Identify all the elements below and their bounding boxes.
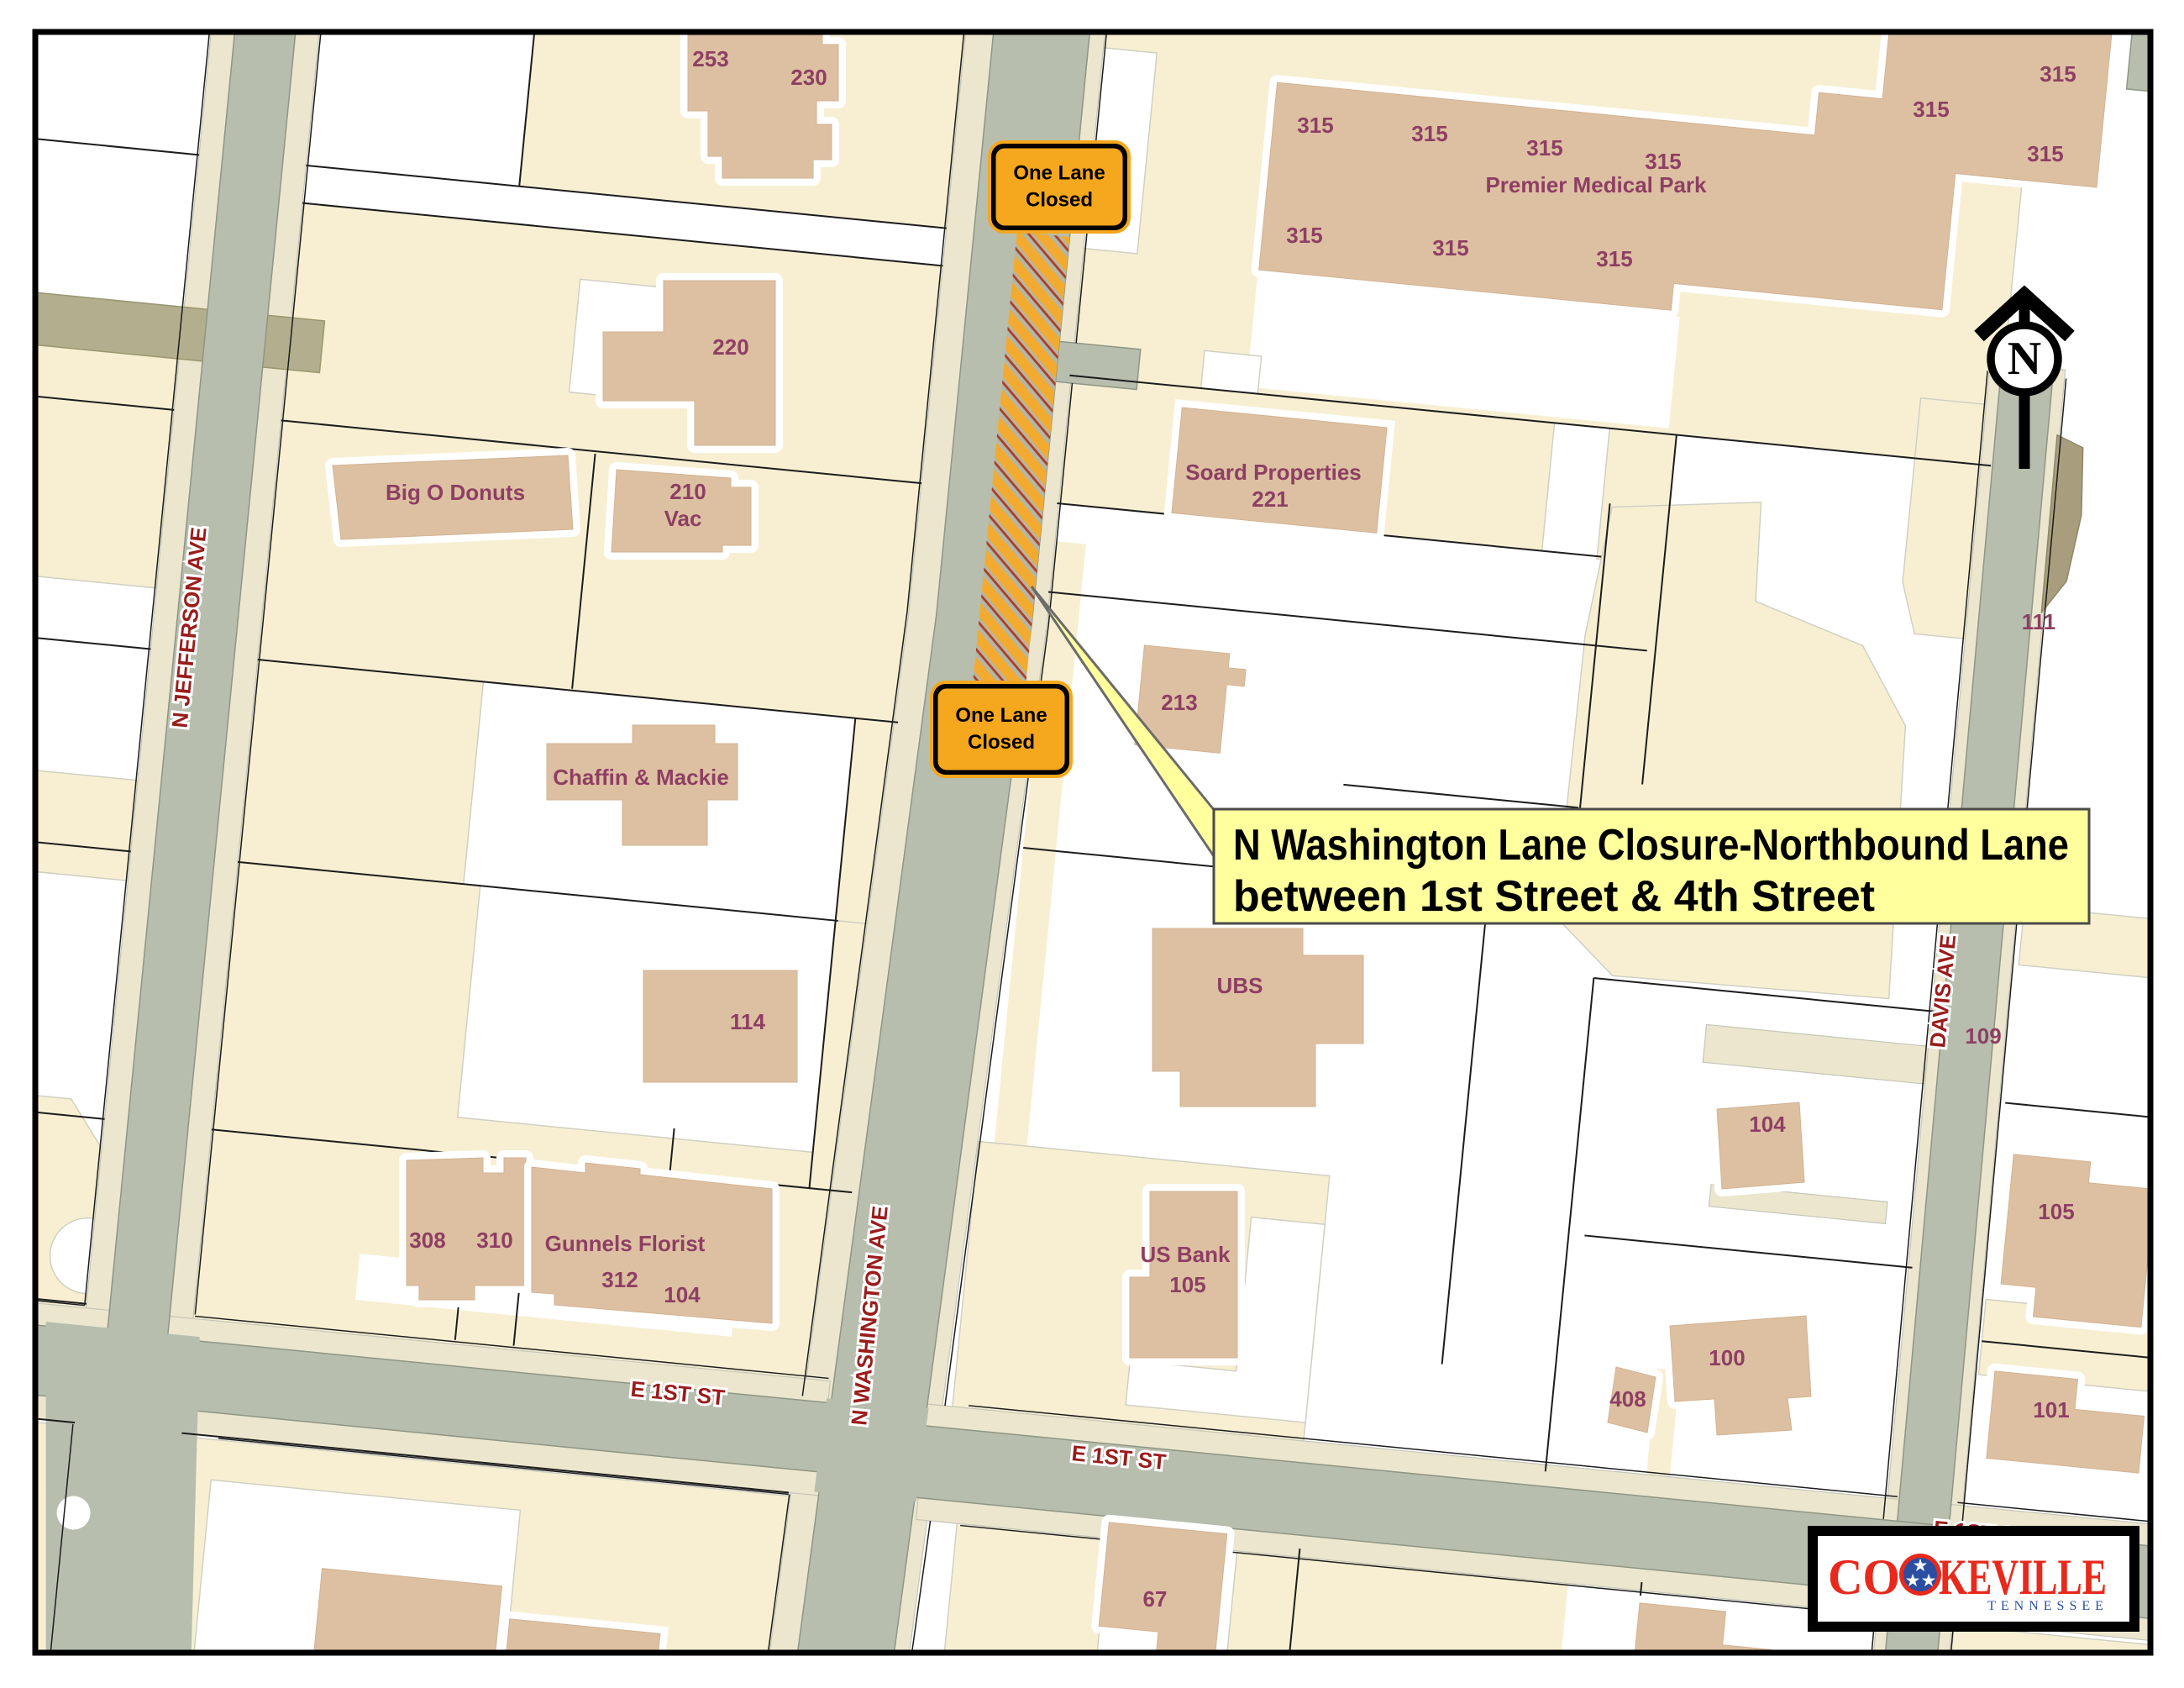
svg-text:315: 315 — [1596, 246, 1632, 271]
svg-text:US Bank: US Bank — [1141, 1242, 1231, 1267]
svg-text:One Lane: One Lane — [955, 704, 1047, 727]
svg-text:315: 315 — [2027, 141, 2063, 166]
svg-text:Vac: Vac — [664, 506, 702, 531]
svg-text:109: 109 — [1965, 1023, 2001, 1049]
svg-text:N Washington Lane Closure-Nort: N Washington Lane Closure-Northbound Lan… — [1233, 821, 2069, 870]
svg-text:315: 315 — [1297, 113, 1333, 138]
svg-text:Gunnels Florist: Gunnels Florist — [545, 1231, 706, 1256]
svg-text:230: 230 — [790, 65, 827, 90]
svg-text:221: 221 — [1252, 486, 1288, 512]
svg-text:315: 315 — [1411, 121, 1447, 146]
svg-text:210: 210 — [669, 479, 706, 504]
svg-text:315: 315 — [1286, 223, 1322, 248]
svg-text:Premier Medical Park: Premier Medical Park — [1485, 172, 1707, 197]
svg-text:Soard Properties: Soard Properties — [1185, 460, 1362, 485]
svg-text:TENNESSEE: TENNESSEE — [1987, 1599, 2108, 1613]
svg-text:315: 315 — [1526, 135, 1562, 160]
svg-text:CO: CO — [1828, 1549, 1900, 1605]
svg-text:Closed: Closed — [968, 731, 1035, 754]
svg-text:408: 408 — [1609, 1386, 1646, 1412]
svg-text:315: 315 — [1645, 149, 1681, 174]
svg-text:104: 104 — [664, 1282, 701, 1307]
svg-text:111: 111 — [2022, 609, 2056, 634]
svg-text:★: ★ — [1905, 1571, 1921, 1591]
svg-text:UBS: UBS — [1217, 973, 1263, 998]
svg-text:213: 213 — [1161, 690, 1197, 715]
svg-text:220: 220 — [712, 334, 748, 360]
svg-text:315: 315 — [1432, 235, 1468, 260]
svg-text:310: 310 — [476, 1228, 512, 1253]
svg-text:105: 105 — [1169, 1272, 1205, 1297]
svg-text:315: 315 — [2040, 61, 2076, 87]
svg-text:N: N — [2008, 333, 2041, 385]
svg-text:312: 312 — [601, 1267, 638, 1292]
svg-text:KEVILLE: KEVILLE — [1939, 1549, 2107, 1605]
svg-text:Closed: Closed — [1026, 189, 1093, 212]
svg-text:253: 253 — [692, 46, 728, 71]
svg-text:315: 315 — [1913, 97, 1949, 122]
svg-text:104: 104 — [1749, 1112, 1786, 1137]
svg-text:101: 101 — [2033, 1397, 2069, 1422]
svg-text:One Lane: One Lane — [1013, 162, 1105, 185]
svg-text:Chaffin & Mackie: Chaffin & Mackie — [553, 765, 729, 790]
svg-text:Big O Donuts: Big O Donuts — [386, 480, 525, 505]
svg-text:114: 114 — [730, 1009, 765, 1034]
svg-text:between 1st Street & 4th Stree: between 1st Street & 4th Street — [1233, 872, 1875, 921]
svg-text:105: 105 — [2038, 1199, 2074, 1224]
svg-text:100: 100 — [1709, 1345, 1745, 1370]
svg-text:67: 67 — [1143, 1586, 1168, 1612]
svg-text:★: ★ — [1921, 1571, 1937, 1591]
svg-text:308: 308 — [409, 1228, 445, 1253]
